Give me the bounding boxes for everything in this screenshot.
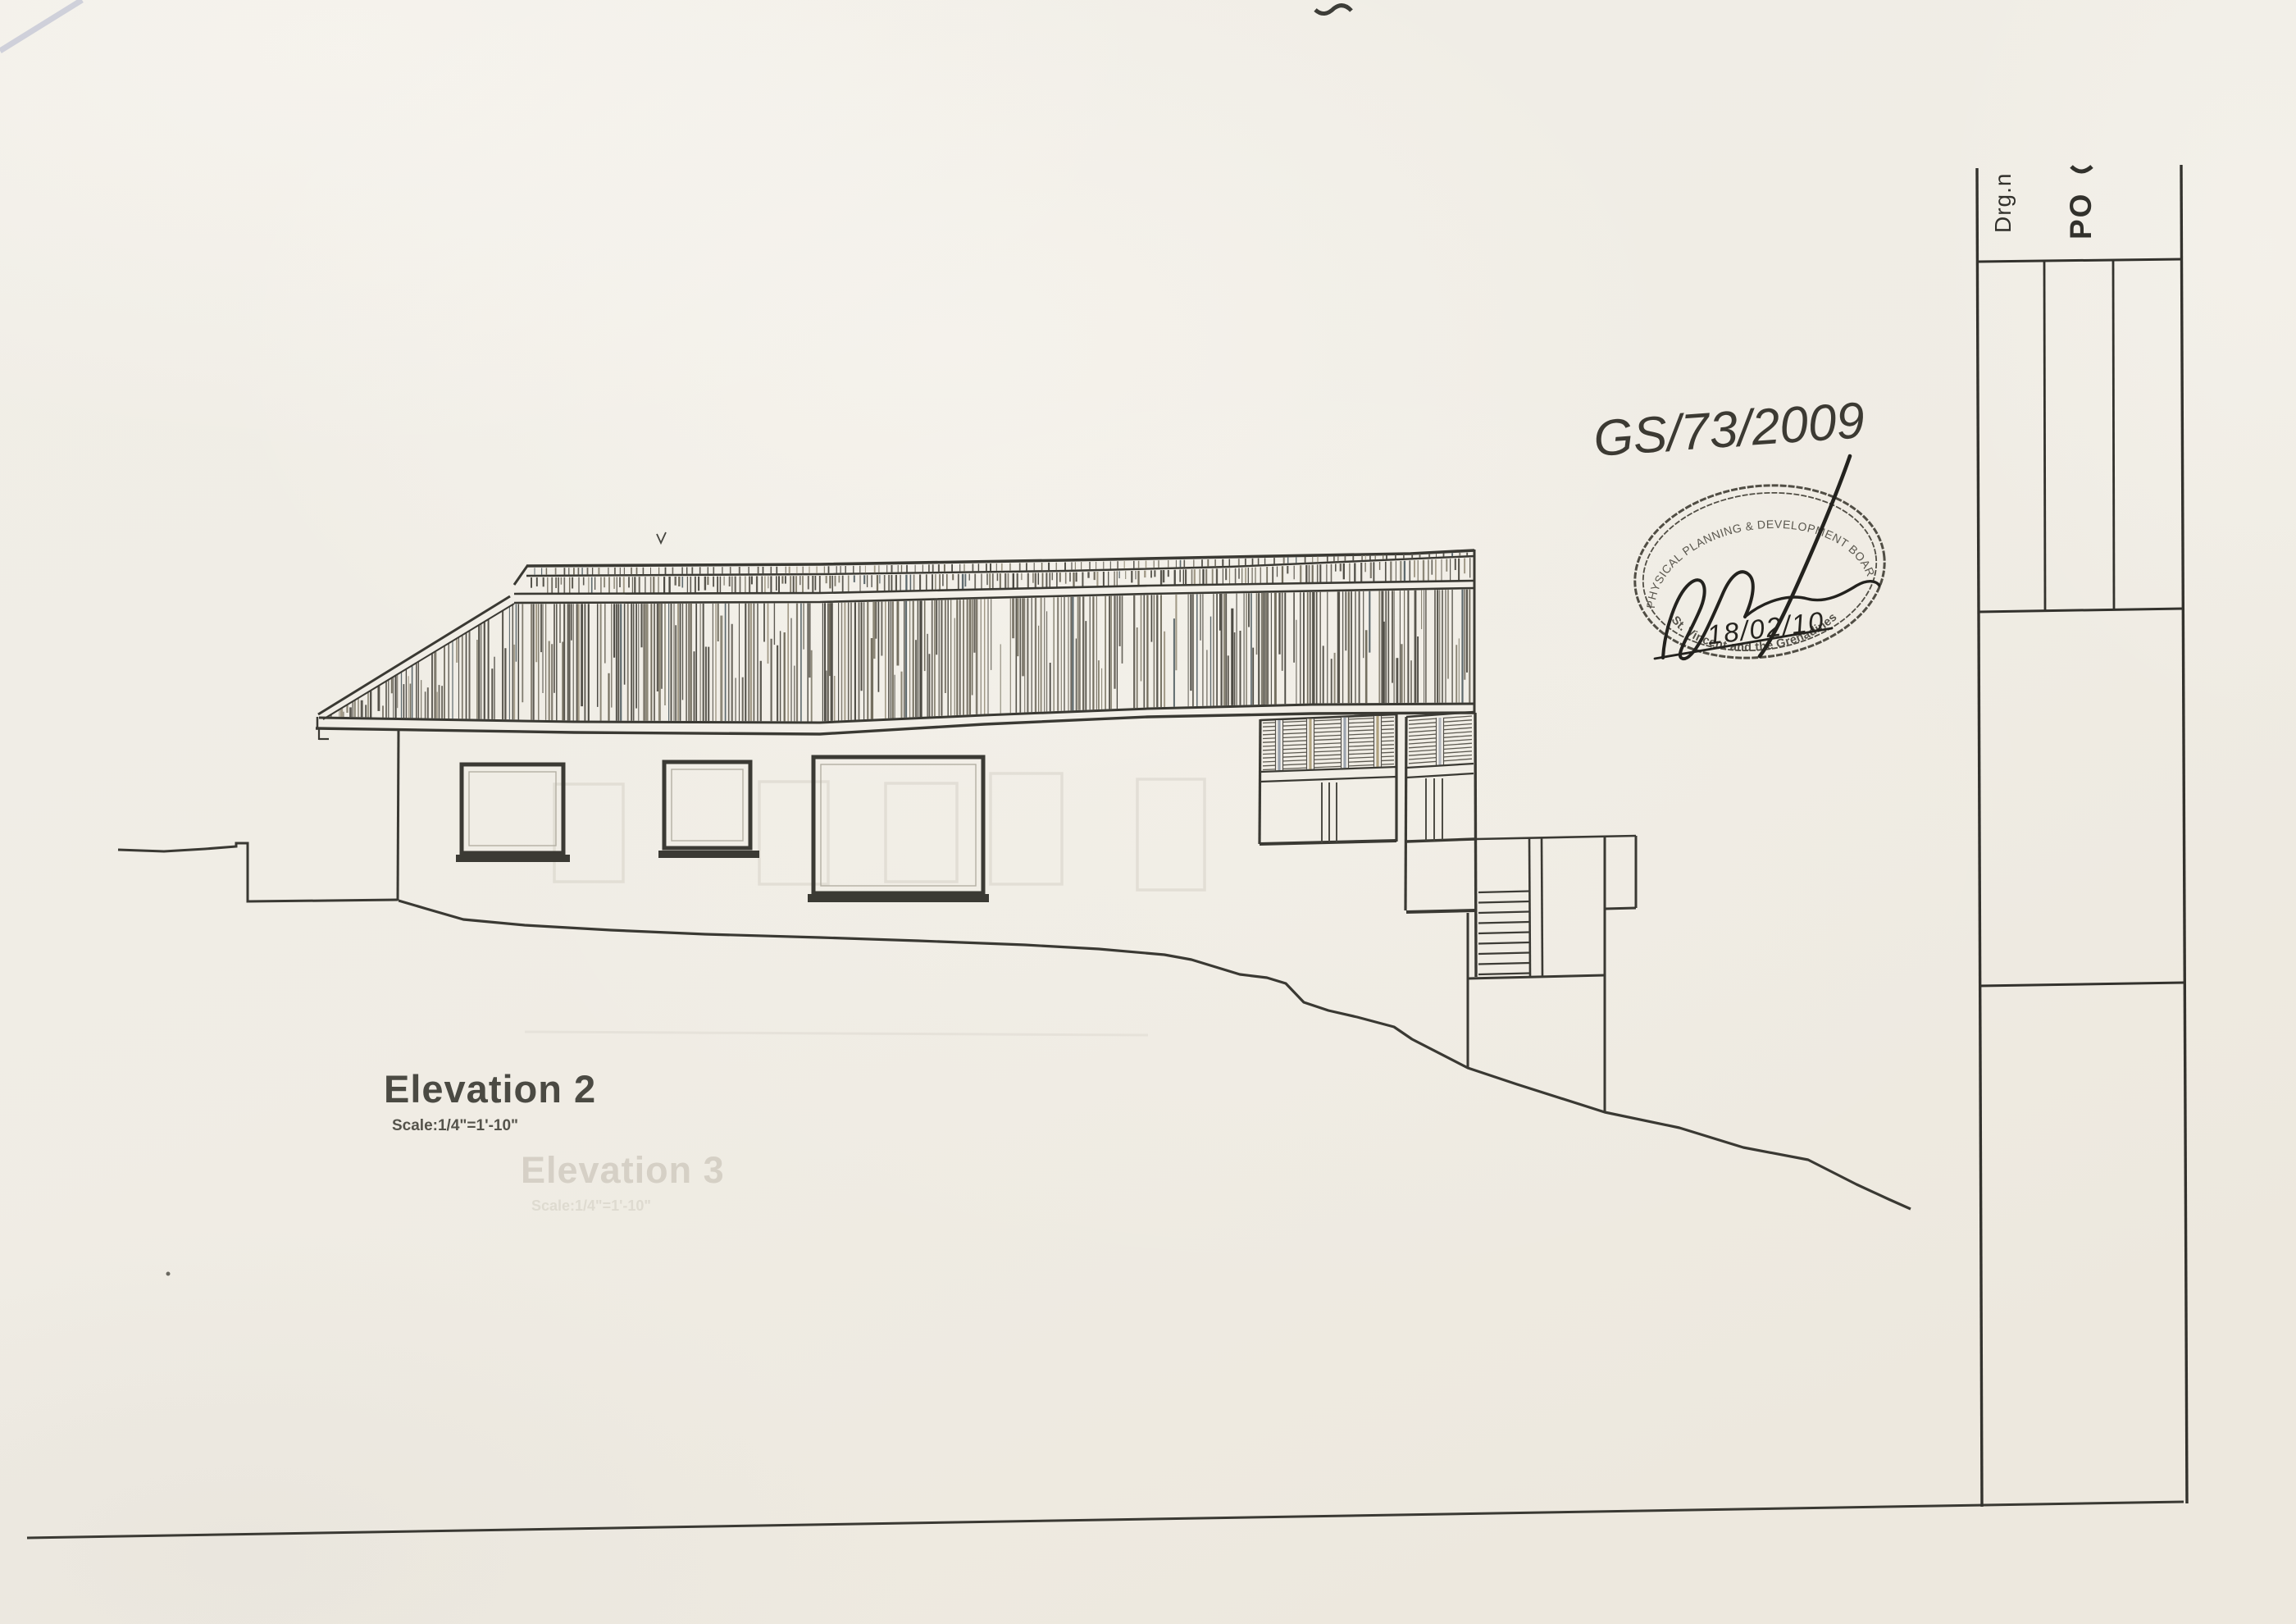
svg-text:Drg.n: Drg.n [1990,173,2016,233]
svg-text:Elevation 3: Elevation 3 [521,1149,725,1191]
svg-text:PO: PO [2064,193,2098,239]
svg-text:Scale:1/4"=1'-10": Scale:1/4"=1'-10" [392,1117,518,1134]
svg-text:Scale:1/4"=1'-10": Scale:1/4"=1'-10" [531,1197,651,1214]
svg-text:Elevation 2: Elevation 2 [384,1067,596,1111]
